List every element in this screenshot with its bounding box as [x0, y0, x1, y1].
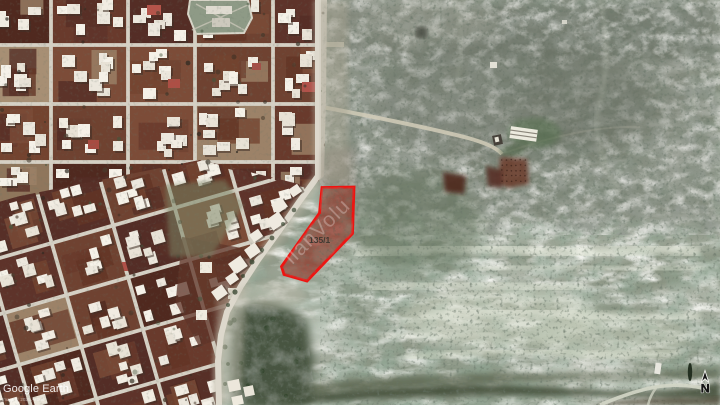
svg-text:Google Earth: Google Earth: [3, 383, 69, 395]
svg-text:Image © 2025 Airbus: Image © 2025 Airbus: [2, 396, 45, 402]
